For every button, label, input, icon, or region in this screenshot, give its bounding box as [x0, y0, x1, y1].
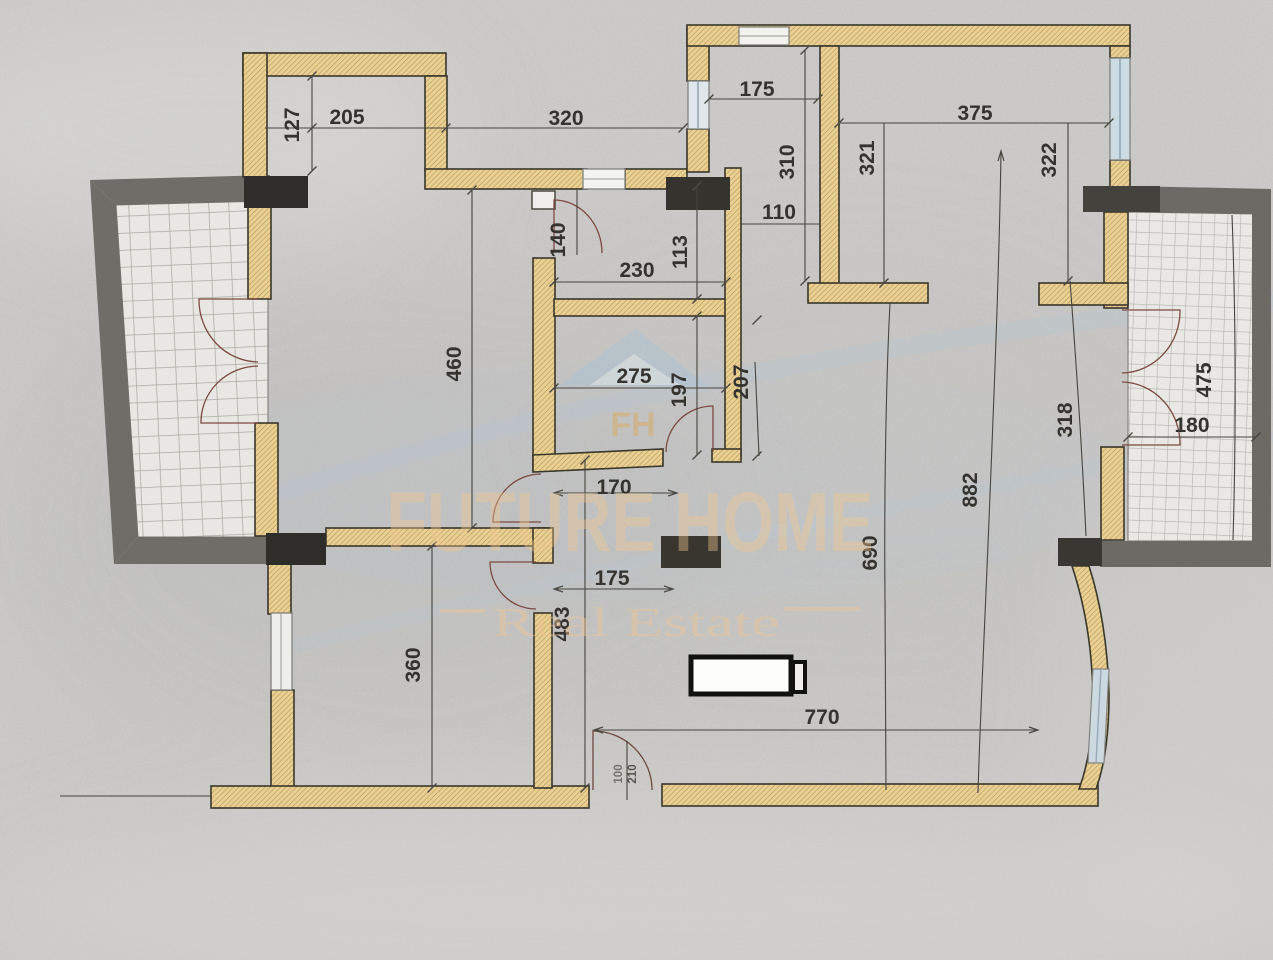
svg-text:230: 230 — [619, 259, 654, 282]
svg-text:360: 360 — [402, 647, 425, 682]
svg-text:175: 175 — [739, 78, 774, 101]
svg-text:882: 882 — [959, 472, 982, 507]
svg-text:320: 320 — [548, 107, 583, 130]
svg-text:210: 210 — [627, 764, 639, 783]
svg-text:113: 113 — [669, 235, 692, 269]
svg-text:318: 318 — [1054, 402, 1077, 437]
svg-text:207: 207 — [730, 364, 753, 399]
svg-text:Real Estate: Real Estate — [493, 599, 780, 645]
svg-text:140: 140 — [547, 222, 570, 257]
svg-text:100: 100 — [613, 764, 625, 783]
svg-text:460: 460 — [443, 346, 466, 381]
svg-text:127: 127 — [281, 107, 304, 142]
svg-text:110: 110 — [762, 201, 796, 224]
svg-text:375: 375 — [957, 102, 992, 125]
svg-text:770: 770 — [804, 706, 839, 729]
svg-text:FUTURE HOME: FUTURE HOME — [387, 475, 874, 569]
svg-text:310: 310 — [776, 144, 799, 179]
svg-text:475: 475 — [1193, 362, 1216, 397]
svg-text:197: 197 — [668, 372, 691, 407]
svg-text:321: 321 — [856, 140, 879, 175]
svg-text:175: 175 — [594, 567, 629, 590]
svg-text:205: 205 — [329, 106, 364, 129]
svg-text:322: 322 — [1038, 142, 1061, 177]
svg-text:275: 275 — [616, 365, 651, 388]
svg-text:FH: FH — [610, 406, 655, 444]
svg-text:180: 180 — [1174, 414, 1209, 437]
